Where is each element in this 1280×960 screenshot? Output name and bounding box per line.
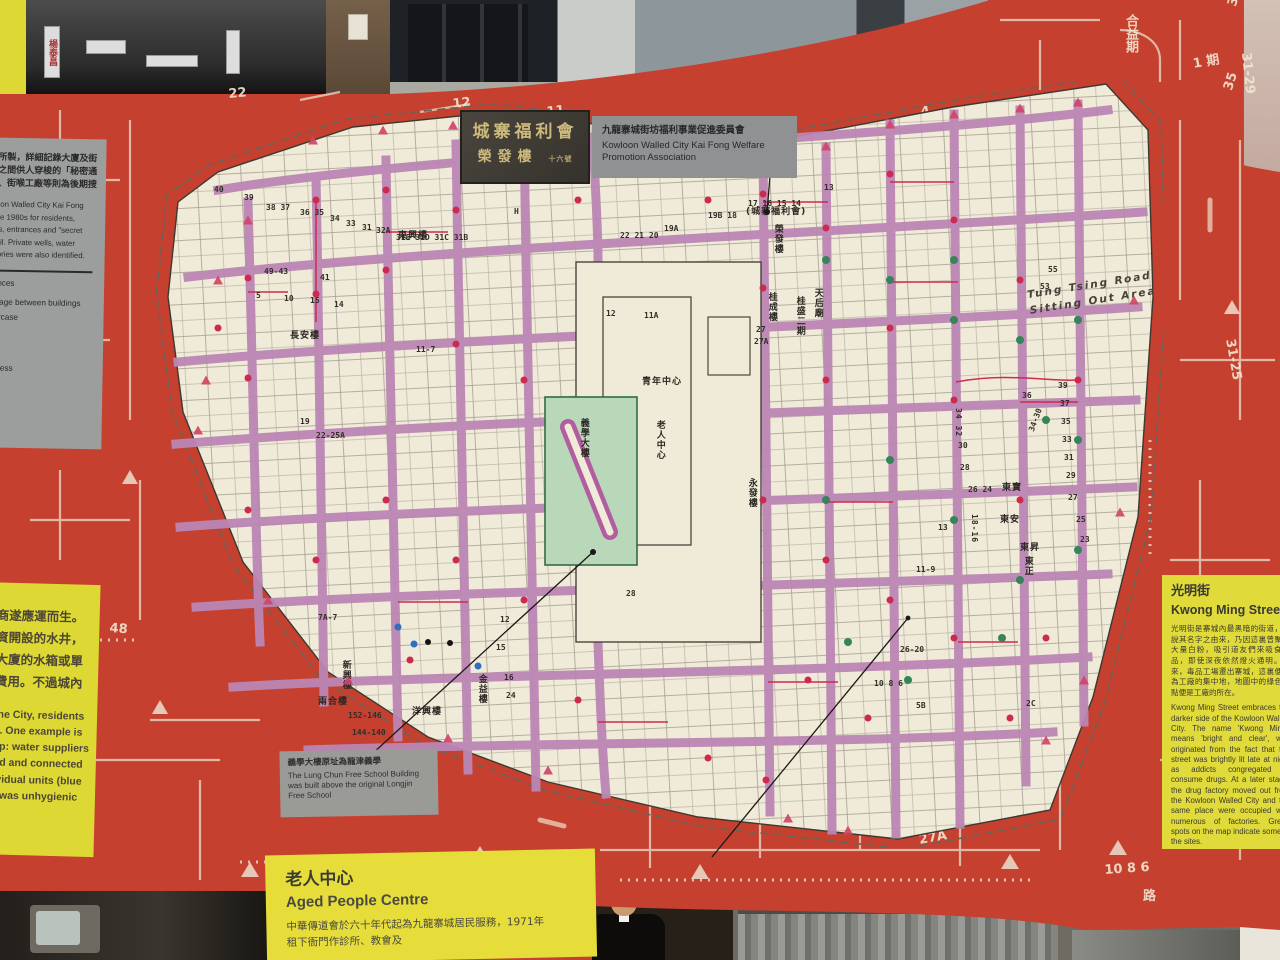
blue-dot bbox=[475, 663, 482, 670]
red-dot bbox=[705, 755, 712, 762]
map-legend: Building entrances穿梭通道Passage between bu… bbox=[0, 278, 100, 400]
green-dot bbox=[886, 456, 894, 464]
map-number: 26 24 bbox=[968, 486, 992, 494]
map-number: 22 21 20 bbox=[620, 232, 659, 240]
exhibit-photo: 楊泰昌 bbox=[0, 0, 1280, 960]
map-number: 49-43 bbox=[264, 268, 288, 276]
map-number: 11-9 bbox=[916, 566, 935, 574]
lane-triangle-marker bbox=[821, 142, 831, 151]
green-dot bbox=[1074, 436, 1082, 444]
stone-sign-title: 城寨福利會 bbox=[462, 124, 588, 141]
legend-row: 穿梭通道Passage between buildings bbox=[0, 295, 100, 315]
map-building-label: 義學大樓 bbox=[578, 418, 588, 458]
lane-triangle-marker bbox=[1129, 296, 1139, 305]
blue-dot bbox=[395, 624, 402, 631]
lane-triangle-marker bbox=[843, 826, 853, 835]
lane-triangle-marker bbox=[543, 766, 553, 775]
red-dot bbox=[705, 197, 712, 204]
red-dot bbox=[760, 497, 767, 504]
kwong-ming-title-zh: 光明街 bbox=[1171, 585, 1280, 599]
map-number: 10 bbox=[284, 295, 294, 303]
stone-sign-photo: 城寨福利會 榮發樓 十六號 bbox=[460, 110, 590, 184]
walled-city-map: Tung Tsing RoadSitting Out Area 403938 3… bbox=[148, 82, 1163, 847]
green-dot bbox=[904, 676, 912, 684]
map-number: 31 bbox=[362, 224, 372, 232]
stone-sign-number: 十六號 bbox=[548, 154, 572, 163]
lane-triangle-marker bbox=[378, 126, 388, 135]
lane-triangle-marker bbox=[343, 676, 353, 685]
map-building-label: 東昇 bbox=[1020, 544, 1040, 554]
map-number: 5 bbox=[256, 292, 261, 300]
red-dot bbox=[865, 715, 872, 722]
map-number: 27A bbox=[754, 338, 768, 346]
map-building-label: 東正 bbox=[1022, 556, 1032, 576]
map-number: 5B bbox=[916, 702, 926, 710]
map-building-label: 東興樓 bbox=[398, 232, 428, 242]
map-number: 25 bbox=[1076, 516, 1086, 524]
map-number: 15 bbox=[496, 644, 506, 652]
lane-triangle-marker bbox=[448, 121, 458, 130]
map-number: 11-7 bbox=[416, 346, 435, 354]
green-dot bbox=[822, 256, 830, 264]
association-label: 九龍寨城街坊福利事業促進委員會 Kowloon Walled City Kai … bbox=[592, 116, 797, 178]
map-building-label: 金益樓 bbox=[476, 674, 486, 704]
red-dot bbox=[887, 597, 894, 604]
legend-label-en: Building entrances bbox=[0, 278, 15, 288]
lane-triangle-marker bbox=[1073, 98, 1083, 107]
map-number: 16 bbox=[504, 674, 514, 682]
map-number: 10 8 6 bbox=[874, 680, 903, 688]
map-number: 13 bbox=[824, 184, 834, 192]
red-dot bbox=[951, 397, 958, 404]
left-story-panel: 商遂應運而生。資開設的水井，大廈的水箱或單費用。不過城內 the City, r… bbox=[0, 581, 101, 857]
black-dot bbox=[447, 640, 453, 646]
red-dot bbox=[453, 557, 460, 564]
map-number: 12 bbox=[500, 616, 510, 624]
red-dot bbox=[1007, 715, 1014, 722]
map-number: 33 bbox=[1062, 436, 1072, 444]
legend-row: ntrance of staircase bbox=[0, 312, 100, 332]
red-dot bbox=[313, 291, 320, 298]
map-number: 29 bbox=[1066, 472, 1076, 480]
stone-sign-building: 榮發樓 bbox=[478, 149, 538, 165]
red-dot bbox=[887, 325, 894, 332]
red-dot bbox=[245, 375, 252, 382]
map-number: 2C bbox=[1026, 700, 1036, 708]
map-number: 30 bbox=[958, 442, 968, 450]
map-number: 19B 18 bbox=[708, 212, 737, 220]
map-building-label: 東安 bbox=[1000, 516, 1020, 526]
red-dot bbox=[575, 197, 582, 204]
red-dot bbox=[453, 207, 460, 214]
map-number: 15 bbox=[310, 297, 320, 305]
map-number: 12 bbox=[606, 310, 616, 318]
legend-row: ublic water access bbox=[0, 363, 99, 383]
blue-dot bbox=[411, 641, 418, 648]
green-dot bbox=[844, 638, 852, 646]
map-number: 152-146 bbox=[348, 712, 382, 720]
map-building-label: 青年中心 bbox=[642, 378, 682, 388]
lane-triangle-marker bbox=[1079, 676, 1089, 685]
map-number: 34 32 bbox=[954, 408, 962, 437]
kwong-ming-body-zh: 光明街是寨城內最黑暗的街道，有說其名字之由來，乃因這裏曾聚有大量白粉，吸引道友們… bbox=[1171, 624, 1280, 698]
map-number: 27 bbox=[756, 326, 766, 334]
map-number: 22-25A bbox=[316, 432, 345, 440]
left-story-en: the City, residentss. One example isap: … bbox=[0, 706, 95, 806]
association-label-en: Kowloon Walled City Kai Fong Welfare Pro… bbox=[602, 140, 787, 163]
green-dot bbox=[1016, 336, 1024, 344]
map-building-label: 天后廟 bbox=[812, 288, 822, 318]
map-building-label: 桂成樓 bbox=[766, 292, 776, 322]
aged-people-centre-panel: 老人中心 Aged People Centre 中華傳道會於六十年代起為九龍寨城… bbox=[265, 849, 597, 960]
red-dot bbox=[760, 191, 767, 198]
stone-sign-subtitle: 榮發樓 十六號 bbox=[462, 150, 588, 164]
red-dot bbox=[887, 171, 894, 178]
red-dot bbox=[1043, 635, 1050, 642]
legend-row: Building entrances bbox=[0, 278, 100, 298]
map-number: 13 bbox=[938, 524, 948, 532]
map-number: 32A bbox=[376, 227, 390, 235]
map-number: 40 bbox=[214, 186, 224, 194]
aged-centre-title-en: Aged People Centre bbox=[286, 888, 582, 911]
red-dot bbox=[1017, 277, 1024, 284]
map-building-label: 長安樓 bbox=[290, 332, 320, 342]
map-number: 18-16 bbox=[970, 514, 978, 543]
map-number: 37 bbox=[1060, 400, 1070, 408]
association-label-zh: 九龍寨城街坊福利事業促進委員會 bbox=[602, 125, 787, 136]
legend-row: rivate well bbox=[0, 329, 99, 349]
legend-label-en: ublic water access bbox=[0, 363, 13, 373]
aged-centre-body: 中華傳道會於六十年代起為九龍寨城居民服務，1971年租下衙門作診所、教會及 bbox=[286, 913, 583, 952]
map-number: H bbox=[514, 208, 519, 216]
map-number: 7A-7 bbox=[318, 614, 337, 622]
green-dot bbox=[1016, 576, 1024, 584]
map-building-label: 東寶 bbox=[1002, 484, 1022, 494]
intro-legend-panel: 會於八十年代所製，詳細記錄大廈及街入口以及樓宇之間供人穿梭的「秘密通入。水井水箱… bbox=[0, 137, 107, 450]
black-dot bbox=[590, 549, 596, 555]
lane-triangle-marker bbox=[308, 136, 318, 145]
lane-triangle-marker bbox=[213, 276, 223, 285]
map-number: 34 bbox=[330, 215, 340, 223]
map-number: 24 bbox=[506, 692, 516, 700]
lane-triangle-marker bbox=[201, 376, 211, 385]
red-dot bbox=[383, 267, 390, 274]
lung-chun-label-zh: 義學大樓原址為龍津義學 bbox=[288, 756, 430, 769]
tung-tsing-note: Tung Tsing RoadSitting Out Area bbox=[1026, 268, 1157, 319]
lane-triangle-marker bbox=[443, 734, 453, 743]
map-number: 41 bbox=[320, 274, 330, 282]
map-number: 35 bbox=[1061, 418, 1071, 426]
map-number: 28 bbox=[960, 464, 970, 472]
map-building-label: 老人中心 bbox=[654, 420, 664, 460]
red-dot bbox=[521, 377, 528, 384]
green-dot bbox=[950, 316, 958, 324]
lane-triangle-marker bbox=[949, 110, 959, 119]
lung-chun-school-label: 義學大樓原址為龍津義學 The Lung Chun Free School Bu… bbox=[279, 749, 438, 818]
red-dot bbox=[1075, 377, 1082, 384]
map-number: 19 bbox=[300, 418, 310, 426]
lane-triangle-marker bbox=[1041, 736, 1051, 745]
legend-label-en: ntrance of staircase bbox=[0, 312, 18, 322]
map-building-label: 永發樓 bbox=[746, 478, 756, 508]
red-dot bbox=[313, 197, 320, 204]
lane-triangle-marker bbox=[243, 216, 253, 225]
red-dot bbox=[383, 497, 390, 504]
lane-triangle-marker bbox=[1015, 104, 1025, 113]
red-dot bbox=[383, 187, 390, 194]
red-dot bbox=[407, 657, 414, 664]
lane-triangle-marker bbox=[885, 120, 895, 129]
map-number: 55 bbox=[1048, 266, 1058, 274]
red-dot bbox=[313, 557, 320, 564]
red-dot bbox=[951, 217, 958, 224]
lane-triangle-marker bbox=[193, 426, 203, 435]
red-dot bbox=[1017, 497, 1024, 504]
red-dot bbox=[805, 677, 812, 684]
green-dot bbox=[950, 516, 958, 524]
red-dot bbox=[823, 225, 830, 232]
map-number: 39 bbox=[244, 194, 254, 202]
lane-triangle-marker bbox=[263, 596, 273, 605]
red-dot bbox=[763, 777, 770, 784]
black-dot bbox=[764, 209, 770, 215]
lung-chun-label-en: The Lung Chun Free School Building was b… bbox=[288, 769, 431, 801]
map-number: 33 bbox=[346, 220, 356, 228]
kwong-ming-title-en: Kwong Ming Street bbox=[1171, 604, 1280, 618]
map-number: 19A bbox=[664, 225, 678, 233]
lane-triangle-marker bbox=[783, 814, 793, 823]
map-number: 39 bbox=[1058, 382, 1068, 390]
legend-divider bbox=[0, 269, 92, 274]
map-building-label: 洋興樓 bbox=[412, 708, 442, 718]
kwong-ming-body-en: Kwong Ming Street embraces the darker si… bbox=[1171, 703, 1280, 847]
green-dot bbox=[1074, 316, 1082, 324]
green-dot bbox=[1074, 546, 1082, 554]
black-dot bbox=[425, 639, 431, 645]
map-number: 27 bbox=[1068, 494, 1078, 502]
map-number: 36 bbox=[1022, 392, 1032, 400]
green-dot bbox=[822, 496, 830, 504]
red-dot bbox=[521, 597, 528, 604]
map-number: 36 35 bbox=[300, 209, 324, 217]
kwong-ming-street-panel: 光明街 Kwong Ming Street 光明街是寨城內最黑暗的街道，有說其名… bbox=[1162, 575, 1280, 849]
map-number: 14 bbox=[334, 301, 344, 309]
map-number: 28 bbox=[626, 590, 636, 598]
legend-row: y bbox=[0, 380, 98, 400]
green-dot bbox=[950, 256, 958, 264]
lane-triangle-marker bbox=[1115, 508, 1125, 517]
green-dot bbox=[1042, 416, 1050, 424]
map-number: 144-140 bbox=[352, 729, 386, 737]
red-dot bbox=[245, 275, 252, 282]
red-dot bbox=[823, 557, 830, 564]
map-number: 23 bbox=[1080, 536, 1090, 544]
map-number: 38 37 bbox=[266, 204, 290, 212]
red-dot bbox=[453, 341, 460, 348]
red-dot bbox=[245, 507, 252, 514]
red-dot bbox=[951, 635, 958, 642]
green-dot bbox=[998, 634, 1006, 642]
red-dot bbox=[575, 697, 582, 704]
legend-label-en: Passage between buildings bbox=[0, 298, 81, 309]
aged-centre-title-zh: 老人中心 bbox=[285, 865, 581, 890]
green-dot bbox=[886, 276, 894, 284]
left-story-zh: 商遂應運而生。資開設的水井，大廈的水箱或單費用。不過城內 bbox=[0, 604, 98, 694]
map-building-label: 兩合樓 bbox=[318, 698, 348, 708]
map-number: 26-20 bbox=[900, 646, 924, 654]
map-number: 31 bbox=[1064, 454, 1074, 462]
red-dot bbox=[760, 285, 767, 292]
map-building-label: (城寨福利會) bbox=[746, 208, 806, 218]
map-labels-layer: Tung Tsing RoadSitting Out Area 403938 3… bbox=[148, 82, 1163, 847]
intro-text-zh: 會於八十年代所製，詳細記錄大廈及街入口以及樓宇之間供人穿梭的「秘密通入。水井水箱… bbox=[0, 151, 102, 193]
intro-text-en: wn by the Kowloon Walled City Kai FongAs… bbox=[0, 198, 102, 263]
map-number: 11A bbox=[644, 312, 658, 320]
red-dot bbox=[823, 377, 830, 384]
map-building-label: 榮發樓 bbox=[772, 224, 782, 254]
red-dot bbox=[215, 325, 222, 332]
legend-row: ater tank bbox=[0, 346, 99, 366]
map-number: 53 bbox=[1040, 283, 1050, 291]
map-building-label: 桂盛二期 bbox=[794, 296, 804, 336]
